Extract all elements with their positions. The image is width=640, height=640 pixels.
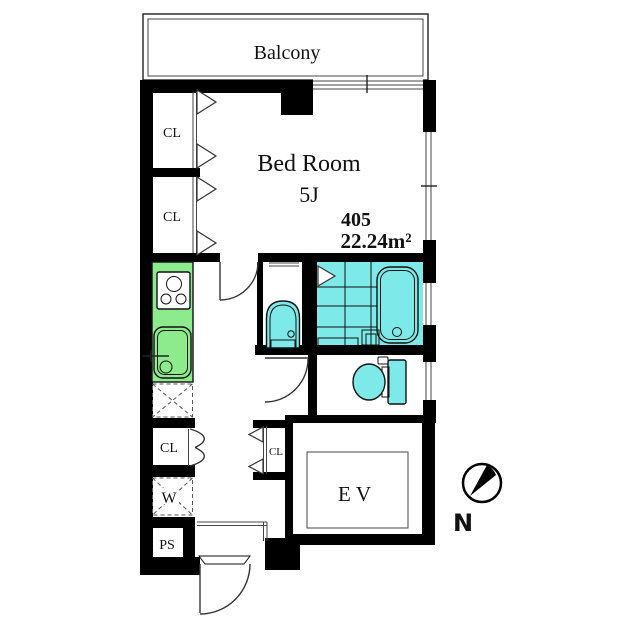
toilet-door-swing [265, 359, 308, 402]
window-bedroom-top [313, 75, 423, 93]
wall-toilet-left [308, 355, 317, 415]
window-glass [423, 362, 436, 400]
compass: N [453, 464, 501, 537]
bedroom-size-label: 5J [299, 182, 319, 207]
wall-ps-right [183, 528, 195, 557]
entrance-threshold [199, 556, 250, 564]
entrance-door-swing [200, 564, 250, 614]
unit-area-label: 22.24m² [340, 229, 411, 253]
wall-closet-washer-divider [140, 465, 195, 477]
wall-right-top [423, 80, 436, 132]
window-glass [423, 283, 436, 325]
kitchen-sink [154, 327, 191, 378]
closet-door-arrow [197, 144, 216, 168]
wall-left [140, 80, 153, 575]
bathroom [317, 262, 423, 347]
wall-hall-closet-bottom [253, 472, 293, 480]
window-toilet [423, 362, 436, 400]
bedroom-door-swing [220, 262, 258, 300]
washbasin-room [267, 263, 300, 348]
balcony: Balcony [143, 14, 428, 80]
wall-bath-left [302, 262, 317, 355]
window-bath [423, 283, 436, 325]
wall-bottom-left [140, 557, 200, 575]
closet-label-1: CL [163, 126, 181, 141]
closet-label-4: CL [269, 446, 283, 458]
elevator: EV [307, 452, 408, 528]
floor-plan-canvas: Balcony [0, 0, 640, 640]
bathtub [377, 267, 418, 343]
wall-ev-top [285, 415, 435, 423]
entrance [197, 522, 267, 564]
toilet-room [353, 357, 406, 404]
wall-washer-ps-divider [140, 517, 195, 528]
closet-door-arrow [197, 177, 216, 201]
wall-ev-right [422, 415, 435, 545]
toilet-bowl [353, 364, 385, 400]
stove [157, 272, 190, 309]
wall-right-mid1 [423, 240, 436, 283]
washer-label: W [161, 490, 177, 507]
wall-pillar [281, 80, 313, 115]
closet-label-2: CL [163, 210, 181, 225]
closet-door-arrow [197, 90, 216, 114]
wall-bedroom-bottom-right [258, 253, 423, 262]
closet-door-arrow [249, 427, 263, 442]
wall-bedroom-bottom-left [140, 253, 220, 262]
balcony-label: Balcony [254, 42, 321, 64]
wall-closet-divider [140, 168, 200, 177]
wall-right-mid2 [423, 325, 436, 362]
closet-label-3: CL [160, 441, 178, 456]
window-bedroom-right [421, 132, 437, 240]
bedroom-label: Bed Room [257, 151, 361, 177]
wall-ev-bottom [285, 534, 435, 545]
toilet-button-icon [378, 357, 388, 364]
wall-washbasin-left [257, 262, 263, 350]
wall-entry-chunk [265, 538, 300, 570]
bifold-door-leaf [190, 429, 204, 448]
north-label: N [453, 509, 473, 537]
toilet-tank [388, 360, 406, 404]
wall-kitchen-closet-top [140, 418, 195, 428]
floor-plan: Balcony [0, 0, 640, 640]
elevator-label: EV [338, 482, 376, 506]
closet-door-arrow [197, 231, 216, 255]
bifold-door-leaf [190, 448, 204, 467]
bedroom: Bed Room 5J 405 22.24m² [257, 151, 411, 253]
unit-number-label: 405 [341, 209, 371, 231]
pipe-space-label: PS [159, 538, 175, 553]
closet-door-arrow [249, 459, 263, 474]
